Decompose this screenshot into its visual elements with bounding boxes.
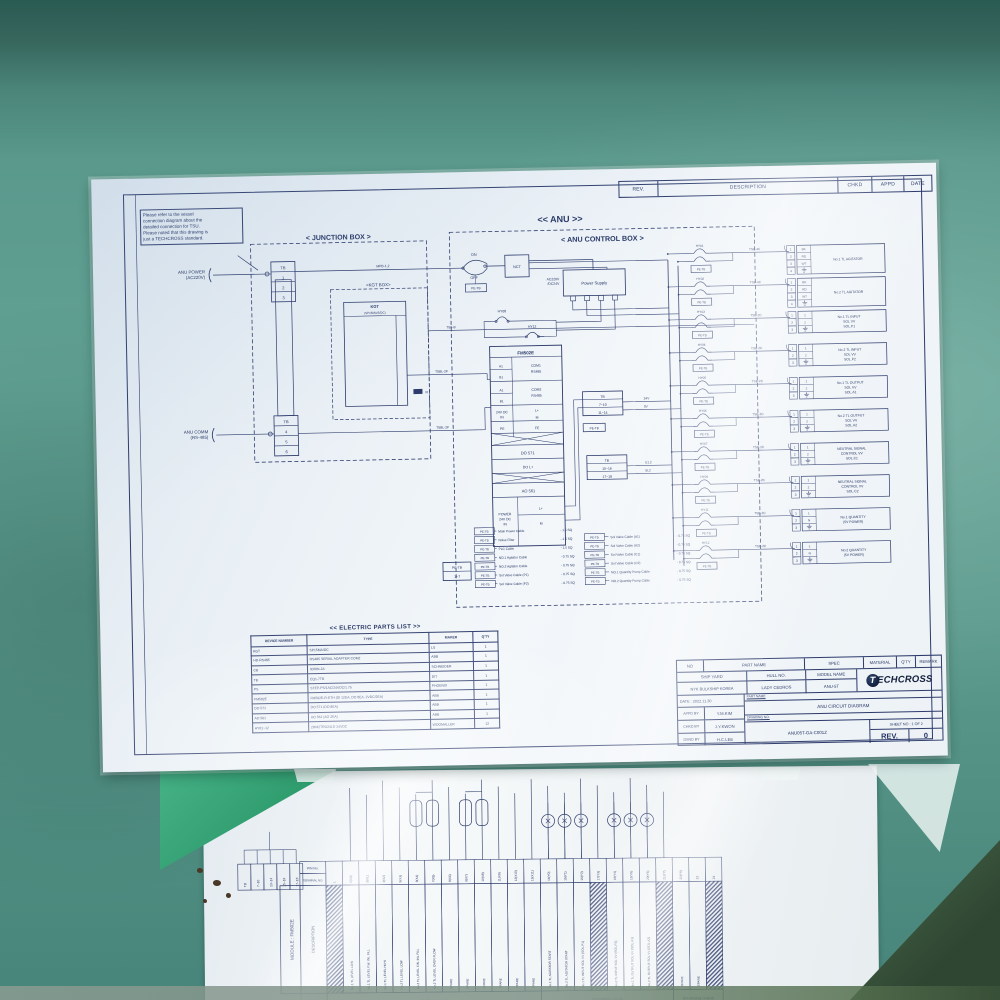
pin-number: 20(Y6) [646,871,650,880]
parts-cell: 1 [473,651,498,661]
terminal-name: L [808,511,810,515]
terminal-name: N [808,518,810,522]
ground-symbol [804,392,809,397]
device-label: No.1 TL OUTPUT [837,380,864,385]
device-label: SOL.A2 [845,423,857,427]
pe-tb-tag: PE-TB [591,571,600,575]
terminal-name: BK [802,280,807,284]
terminal-number: 2 [794,453,796,457]
tb-mini-text: 7~10 [256,880,260,887]
terminal-name: 2 [805,353,807,357]
description-text: No.2 TL AGITATOR START [564,950,568,988]
pe-tb-tag: PE-TB [481,565,490,569]
pe-tb-label: PE-TB [701,465,710,469]
cable-size: - 1.5 SQ [561,546,573,550]
model-h: MODEL NAME [806,669,856,679]
ground-symbol [802,267,807,272]
svg-text:M: M [536,416,539,420]
relay-contact [692,381,712,386]
cable-size: - 0.75 SQ [561,563,575,567]
relay-output-group: HY04PE-TBTSB-2C12312No.2 TL INPUTSOL VVS… [669,339,887,372]
terminal-number: 3 [795,526,797,530]
relay-contact [691,315,711,320]
svg-text:<KGT BOX>: <KGT BOX> [366,282,391,288]
relay-contact [695,513,715,518]
pilot-relays: HY08 HY12 [484,308,557,339]
description-cell [672,881,690,989]
tb-material-h: MATERIAL [864,656,897,668]
svg-text:1~7: 1~7 [454,575,460,579]
pin-number: 7(X5) [431,875,435,883]
hull-value: LADY CEDROS [747,680,806,694]
svg-text:24V DC: 24V DC [499,517,512,521]
svg-text:TB: TB [283,419,289,424]
description-text: No.2 TL INPUT SOL VV (SOL.P2) [614,941,618,988]
dsnd-h: DSND BY [678,733,705,746]
hatched-cell [590,882,608,990]
title-block: NO PART NAME SPEC MATERIAL Q'TY REMARK S… [676,655,944,746]
pe-legend-row: PE-TBSol Valve Cable (A2)- 0.75 SQ [585,540,691,549]
wire-label: TSB-B [446,325,455,329]
rev-col: REV. [619,181,658,197]
svg-text:OFF: OFF [470,276,478,280]
svg-text:A1: A1 [499,388,503,392]
wire [383,781,384,861]
relay-output-group: HY05PE-TBTSB-2C12312No.1 TL OUTPUTSOL VV… [669,372,887,405]
svg-text:FE: FE [535,426,540,430]
hull-h: HULL NO. [747,670,806,680]
svg-text:11~14: 11~14 [598,411,607,415]
terminal-number: 2 [795,486,797,490]
parts-cell: 1 [474,661,499,671]
ground-symbol [803,359,808,364]
terminal-name: 2 [806,419,808,423]
svg-text:B1: B1 [500,399,504,403]
svg-text:PE-TB: PE-TB [471,286,480,290]
terminal-name: 1 [805,379,807,383]
relay-contact [693,414,713,419]
cable-size: - 0.75 SQ [677,542,691,546]
svg-text:DO 571: DO 571 [521,450,536,455]
tsu-note: Please refer to the vessel connection di… [140,208,244,246]
svg-text:6: 6 [285,449,288,454]
wire [714,483,793,485]
junction-terminals: TB 1 2 3 TB 4 5 6 [271,261,299,455]
pe-tb-tag: PE-TB [480,547,489,551]
device-label: SOL VV [845,418,858,422]
svg-text:PE-TB: PE-TB [452,566,463,570]
ground-symbol [805,458,810,463]
wire [710,285,789,287]
cable-name: NO.1 Quantity Pump Cable [611,570,650,575]
terminal-number: 2 [791,321,793,325]
pin-number: 19(Y5) [629,871,633,880]
terminal-number: 1 [793,412,795,416]
svg-text:HY12: HY12 [528,325,537,329]
device-label: SOL VV [844,352,857,356]
wire [663,792,664,858]
pin-number: 24 [712,875,716,879]
svg-text:COM1: COM1 [531,364,541,368]
cable-size: - 0.75 SQ [677,569,691,573]
description-text: No.2 TL OUTPUT SOL VV (SOL.A2) [647,937,652,987]
parts-header-cell: Q'TY [473,631,498,642]
long-wire [298,430,479,434]
relay-contact [694,480,714,485]
pe-legend-row: PE-TBNoise Filter- 1.5 SQ [474,535,573,544]
appd-h: APPD BY [678,707,705,720]
wire [498,786,499,859]
parts-cell: 1 [474,670,499,680]
description-cell [458,884,476,992]
terminal-number: 3 [790,262,792,266]
cable-label: TSB-4C [749,247,761,251]
pe-tb-label: PE-TB [702,531,711,535]
description-cell [689,881,707,989]
terminal-number: 1 [795,511,797,515]
pe-legend-row: PE-TBNO.2 Agitator Cable- 0.75 SQ [475,561,575,570]
svg-text:NCT: NCT [513,265,522,269]
hatched-cell [656,882,674,990]
svg-text:PE: PE [500,427,505,431]
svg-text:AO 561: AO 561 [522,488,536,493]
device-label: No.1 QUANTITY [840,515,866,520]
relay-label: HY03 [697,310,705,314]
cable-name: Sol Valve Cable (P1) [499,573,528,578]
plc-module: FM502E A1 B1 COM1 RS485 A1 B1 COM2 RS485… [490,345,586,547]
relay-output-group: HY02PE-TBTSB-4C1234BKRDWTNo.2 TL AGITATO… [667,273,886,310]
svg-text:KGT: KGT [370,304,379,309]
terminal-name: 2 [807,452,809,456]
note-line: just a TECHCROSS standard. [143,234,240,242]
tb-partname-h: PART NAME [704,658,805,671]
cable-size: - 0.75 SQ [676,534,690,538]
relay-output-group: HY06PE-TBTSB-2C12312No.2 TL OUTPUTSOL VV… [670,405,888,438]
appd-value: Y.M.KIM [705,707,744,720]
sleeve-tab [294,769,336,782]
hatched-cell [326,885,344,993]
terminal-name: BK [802,247,807,251]
relay-label: HY01 [696,244,704,248]
svg-text:SL2: SL2 [645,468,651,472]
terminal-number: 4 [791,302,793,306]
cable-label: TSB-2C [754,511,766,515]
power-supply: Power Supply AC220V /DC24V [546,268,679,331]
terminal-number: 1 [790,280,792,284]
relay-output-group: HY11PE-TBTSB-2C123LNNo.1 QUANTITY(5V POW… [672,504,890,537]
terminal-name: 2 [808,485,810,489]
terminal-number: 3 [792,361,794,365]
relay-output-group: HY12PE-TBTSB-2C123LNNo.2 QUANTITY(5V POW… [673,537,891,570]
wire [811,278,812,307]
debris-speck [197,868,203,873]
bus-24v [668,260,674,560]
chkd-h: CHKD BY [678,720,705,733]
pe-tb-tag: PE-TB [481,556,490,560]
hatched-cell [705,881,723,989]
wire [515,793,516,859]
relay-contact [693,422,713,427]
svg-text:FM502E: FM502E [517,350,534,355]
cable-size: - 0.75 SQ [677,551,691,555]
cable-name: Sol Valve Cable (A2) [611,543,640,548]
pin-number: 13(X11) [530,870,534,881]
terminal-name: RD [802,287,807,291]
pin-number: 14(Y0) [547,872,551,881]
ground-symbol [807,524,812,529]
pin-number: 2(X0) [349,875,353,883]
tb-blocks: TB 7~10 11~14 PE-TB TB 15~16 17~18 24V 0… [582,390,682,480]
ground-symbol [807,557,812,562]
parts-cell: 1 [474,689,499,699]
debris-speck [213,880,221,886]
parts-cell: 2RM2TRO24LD 24VDC [309,720,431,732]
terminal-name: 1 [807,478,809,482]
rev-h: REV. [870,729,909,743]
terminal-number: 3 [791,328,793,332]
svg-text:5: 5 [285,439,288,444]
pin-number: 22(Y8) [679,870,683,879]
relay-label: HY05 [698,376,706,380]
note-pointer-line [238,255,258,270]
description-col: DESCRIPTION [658,178,838,197]
terminal-number: 2 [792,354,794,358]
cable-label: TSB-2C [754,478,766,482]
cable-name: Noise Filter [498,538,515,542]
wire [244,850,296,851]
tb-mini-text: 17~18 [295,877,299,886]
relay-label: HY12 [702,541,710,545]
pe-tb-summary-box: PE-TB1~7 [443,562,471,581]
relay-contact [694,455,714,460]
parts-table: DEVICE NUMBERTYPEMAKERQ'TYKGTSP15MA/DCLS… [250,630,500,733]
pin-number: 1 [332,881,336,883]
debris-speck [203,899,207,903]
terminal-name: 2 [806,386,808,390]
ground-symbol [803,326,808,331]
svg-text:A1: A1 [499,364,503,368]
relay-label: HY07 [700,442,708,446]
pin-number: 11(X9) [497,872,501,881]
description-text: No.1 TL OUTPUT SOL VV (SOL.A1) [630,937,635,987]
cable-name: NO.2 Quantity Pump Cable [611,578,650,583]
description-cell [491,883,509,991]
terminal-number: 2 [791,288,793,292]
wire [716,548,795,550]
resistor-label: R [425,390,428,394]
svg-text:TB: TB [605,459,610,463]
pe-tb-label: PE-TB [697,300,706,304]
terminal-number: 1 [791,313,793,317]
power-wire [295,268,459,271]
pin-number: 4(X2) [382,875,386,883]
pe-legend-row: PE-TBNO.1 Quantity Pump Cable- 0.75 SQ [585,567,691,576]
svg-text:RS485: RS485 [531,370,542,374]
wire-label: TSBL-2P [435,369,448,373]
cable-name: Sol Valve Cable (P2) [499,582,528,587]
parts-cell: 1 [473,641,498,651]
relay-label: HY06 [699,409,707,413]
terminal-name: N [809,551,811,555]
wire-label: TSBL-2P [436,425,449,429]
svg-text:HY08: HY08 [498,309,507,313]
wire [711,318,790,320]
pe-legend-row: PE-TBNO.1 Agitator Cable- 0.75 SQ [475,552,575,561]
terminal-number: 3 [793,427,795,431]
parts-cell: 1 [474,699,499,709]
svg-text:7~10: 7~10 [599,403,607,407]
svg-text:POWER: POWER [498,512,511,516]
parts-cell: 12 [475,718,500,728]
relay-contact [692,389,712,394]
wire [712,384,791,386]
pe-tb-label: PE-TB [697,267,706,271]
cable-name: Sol Valve Cable (A1) [610,535,639,540]
svg-text:COM2: COM2 [532,388,542,392]
device-label: No.1 TL AGITATOR [833,257,863,262]
terminal-name: L [809,544,811,548]
pin-number: 12(X10) [514,870,518,881]
relay-contact [696,546,716,551]
svg-text:U1.2: U1.2 [645,460,652,464]
svg-text:L+: L+ [539,507,543,511]
description-text: No.2 TL LEVEL F.W. INL FILL [416,948,420,989]
module-port-wires [478,374,491,430]
relay-contact [690,249,710,254]
pe-legend-row: PE-TBMain Power Cable- 1.5 SQ [474,526,573,535]
cable-name: NO.1 Agitator Cable [499,555,528,560]
pe-legend-row: PE-TBSol Valve Cable (P1)- 0.75 SQ [475,570,575,579]
pin-number: 6(X4) [415,875,419,883]
device-label: CONTROL VV [841,451,864,455]
chkd-value: J.Y.KWON [705,720,744,733]
debris-speck [226,893,231,898]
drawingno-value: ANU05T-GA-C001Z [745,720,870,746]
parts-cell: HY01~12 [253,722,310,733]
pe-legend-row: PE-TBSol Valve Cable (P2)- 0.75 SQ [475,579,575,588]
relay-contact [692,356,712,361]
device-label: CONTROL VV [841,484,864,488]
svg-text:4: 4 [285,429,288,434]
description-text: No.1 TL LEVEL F.W. INL FILL [366,949,370,990]
description-text: No.1 TL AGITATOR START [548,950,552,988]
terminal-number: 2 [795,519,797,523]
wire [712,351,791,353]
pe-legend-row: PE-TBSol Valve Cable (C2)- 0.75 SQ [585,558,691,567]
chkd-col: CHKD [838,177,872,193]
terminal-number: 4 [790,269,792,273]
wire [443,571,471,572]
junction-box [250,241,430,462]
terminal-number: 2 [790,255,792,259]
terminal-name: 2 [804,320,806,324]
pe-tb-label: PE-TB [699,366,708,370]
ground-symbol [802,300,807,305]
parts-cell: 1 [474,680,499,690]
svg-text:(SP15MA/5/DC): (SP15MA/5/DC) [364,311,386,315]
pin-number: 18(Y4) [613,871,617,880]
svg-text:/DC24V: /DC24V [547,282,560,286]
tb-mini-text: TB [243,883,247,887]
svg-text:17~18: 17~18 [602,475,612,479]
pe-tb-tag: PE-TB [480,530,489,534]
pe-tb-tag: PE-TB [590,535,599,539]
cable-size: - 0.75 SQ [561,581,575,585]
wire [531,779,532,859]
relay-output-group: HY09PE-TBTSB-2C12312NEUTRAL SIGNALCONTRO… [671,471,889,504]
terminal-number: 1 [794,478,796,482]
svg-text:24V: 24V [644,396,651,400]
cable-size: - 0.75 SQ [561,554,575,558]
terminal-number: 1 [792,379,794,383]
pe-tb-tag: PE-TB [590,553,599,557]
pin-number: 21(Y7) [662,870,666,879]
pe-tb-label: PE-TB [700,432,709,436]
terminal-number: 2 [796,552,798,556]
cable-size: - 0.75 SQ [677,578,691,582]
terminal-number: 1 [794,445,796,449]
relay-contact [696,554,716,559]
svg-text:15~16: 15~16 [602,467,612,471]
device-label: No.2 TL AGITATOR [834,290,864,295]
date-col: DATE [904,176,931,192]
terminal-number: 2 [793,420,795,424]
svg-text:3: 3 [282,295,285,300]
sheet1-paper: << ANU >> < ANU CONTROL BOX > < JUNCTION… [91,163,948,773]
description-text: No.1 TL INPUT SOL VV (SOL.P1) [581,941,585,988]
wire [465,794,466,860]
pe-tb-label: PE-TB [703,564,712,568]
kgt-box: <KGT BOX> KGT (SP15MA/5/DC) [330,281,430,419]
pin-number: 16(Y2) [580,871,584,880]
tb-remark-h: REMARK [916,656,941,667]
long-wire [407,374,478,375]
electric-parts-list: << ELECTRIC PARTS LIST >> DEVICE NUMBERT… [250,622,502,733]
device-label: SOL.C2 [846,489,858,493]
pin-number: 9(X7) [464,874,468,882]
pe-legend-row: PE-TBNO.2 Quantity Pump Cable- 0.75 SQ [585,576,691,585]
device-label: No.2 QUANTITY [841,548,867,553]
cable-size: - 0.75 SQ [677,560,691,564]
terminal-number: 3 [796,559,798,563]
description-header: DESCRIPTION [310,926,315,953]
wire [713,417,792,419]
device-label: SOL.A1 [845,390,857,394]
terminal-header: TERMINAL NO. [303,878,324,882]
terminal-name: 1 [805,346,807,350]
tb-spec-h: SPEC [805,657,864,669]
svg-text:RS485: RS485 [531,394,542,398]
cable-name: Sol Valve Cable (C1) [611,552,641,557]
wire [449,787,450,860]
device-label: SOL.C1 [846,456,858,460]
pin-number: 17(Y3) [596,871,600,880]
techcross-logo: T ECHCROSS [856,668,941,692]
frame-margin-line [135,195,146,755]
description-text: SPARE [680,976,684,986]
tb-mini-text: 13~14 [269,878,273,887]
svg-text:IN: IN [503,522,507,526]
device-label: (5V POWER) [843,520,863,524]
device-label: No.2 TL OUTPUT [838,413,865,418]
pin-number: 8(X6) [448,874,452,882]
terminal-name: WT [802,262,807,266]
svg-text:PE-TB: PE-TB [590,426,599,430]
svg-text:B1: B1 [499,375,503,379]
mat-edge [0,986,1000,1000]
terminal-name: RD [802,254,807,258]
wire [710,252,789,254]
